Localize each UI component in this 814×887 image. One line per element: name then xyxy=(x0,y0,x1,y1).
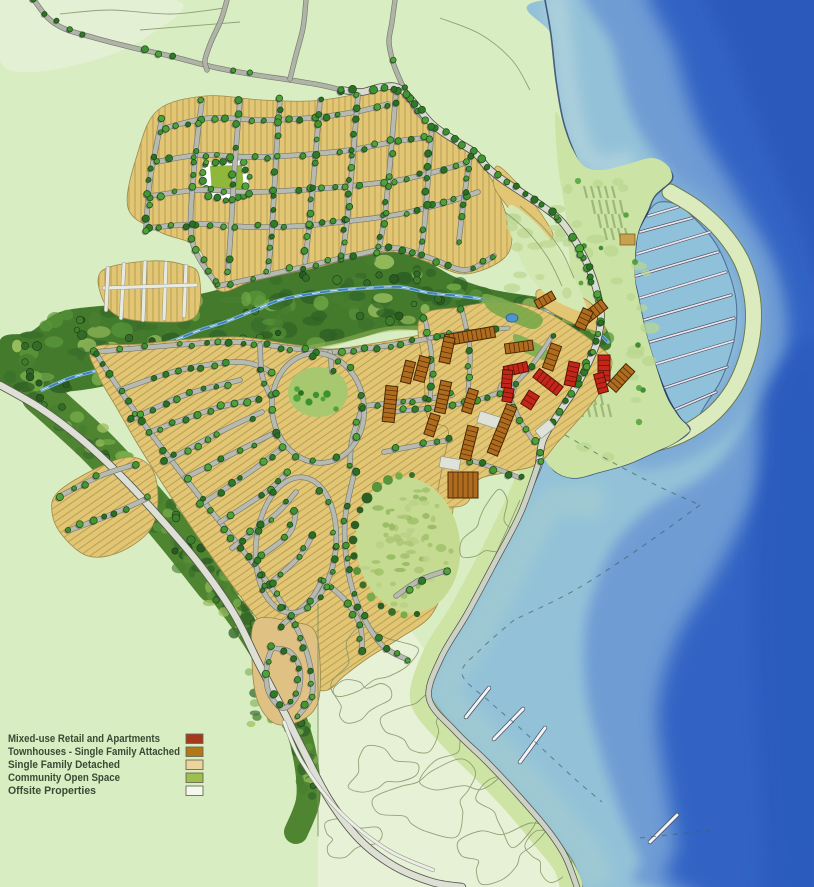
svg-text:Mixed-use Retail and Apartment: Mixed-use Retail and Apartments xyxy=(8,733,160,745)
svg-text:Community Open Space: Community Open Space xyxy=(8,772,120,784)
svg-text:Offsite Properties: Offsite Properties xyxy=(8,785,96,797)
svg-text:Townhouses - Single Family Att: Townhouses - Single Family Attached xyxy=(8,746,180,758)
svg-text:Single Family Detached: Single Family Detached xyxy=(8,759,120,771)
